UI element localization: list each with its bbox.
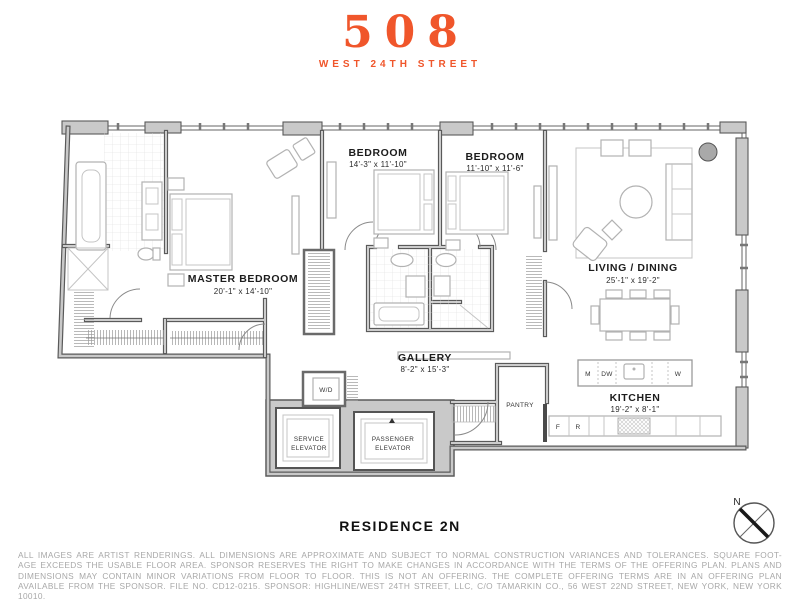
floor-plan-drawing: MASTER BEDROOM 20'-1" x 14'-10" BEDROOM … (0, 0, 800, 600)
master-bedroom-furniture (168, 137, 316, 286)
master-bedroom-label: MASTER BEDROOM (188, 273, 298, 285)
living-dining-furniture (549, 140, 717, 262)
compass-north-label: N (733, 497, 740, 508)
kitchen-dims: 19'-2" x 8'-1" (611, 405, 660, 414)
living-dining-label: LIVING / DINING (588, 262, 678, 274)
disclaimer-line-3: DIMENSIONS MAY CONTAIN MINOR VARIATIONS … (18, 571, 782, 581)
disclaimer-line-4: AVAILABLE FROM THE SPONSOR. FILE NO. CD1… (18, 581, 782, 600)
microwave-label: M (585, 371, 591, 378)
gallery-label: GALLERY (398, 352, 452, 364)
bedroom1-furniture (327, 162, 434, 248)
disclaimer-text: ALL IMAGES ARE ARTIST RENDERINGS. ALL DI… (18, 550, 782, 600)
disclaimer-line-2: AGE EXCEEDS THE USABLE FLOOR AREA. SPONS… (18, 560, 782, 570)
bedroom1-dims: 14'-3" x 11'-10" (349, 160, 407, 169)
gallery-dims: 8'-2" x 15'-3" (401, 365, 450, 374)
dishwasher-label: DW (601, 371, 613, 378)
master-bedroom-dims: 20'-1" x 14'-10" (214, 287, 272, 296)
freezer-label: F (556, 424, 560, 431)
passenger-elevator-label-1: PASSENGER (372, 436, 414, 443)
structural-column (699, 143, 717, 161)
washer-dryer-label: W/D (319, 387, 333, 394)
wine-cooler-label: W (675, 371, 682, 378)
dining-table (591, 290, 679, 340)
refrigerator-label: R (576, 424, 581, 431)
bedroom1-label: BEDROOM (348, 147, 407, 159)
service-elevator-label-1: SERVICE (294, 436, 324, 443)
bedroom2-dims: 11'-10" x 11'-6" (466, 164, 523, 173)
pantry-label: PANTRY (506, 402, 534, 409)
living-dining-dims: 25'-1" x 19'-2" (606, 276, 660, 285)
pantry-door-leaf (543, 404, 547, 442)
disclaimer-line-1: ALL IMAGES ARE ARTIST RENDERINGS. ALL DI… (18, 550, 782, 560)
residence-title: RESIDENCE 2N (0, 518, 800, 534)
passenger-elevator-label-2: ELEVATOR (375, 445, 411, 452)
bedroom2-label: BEDROOM (465, 151, 524, 163)
floor-plan-page: 508 WEST 24TH STREET (0, 0, 800, 600)
kitchen-label: KITCHEN (610, 392, 661, 404)
service-elevator-label-2: ELEVATOR (291, 445, 327, 452)
